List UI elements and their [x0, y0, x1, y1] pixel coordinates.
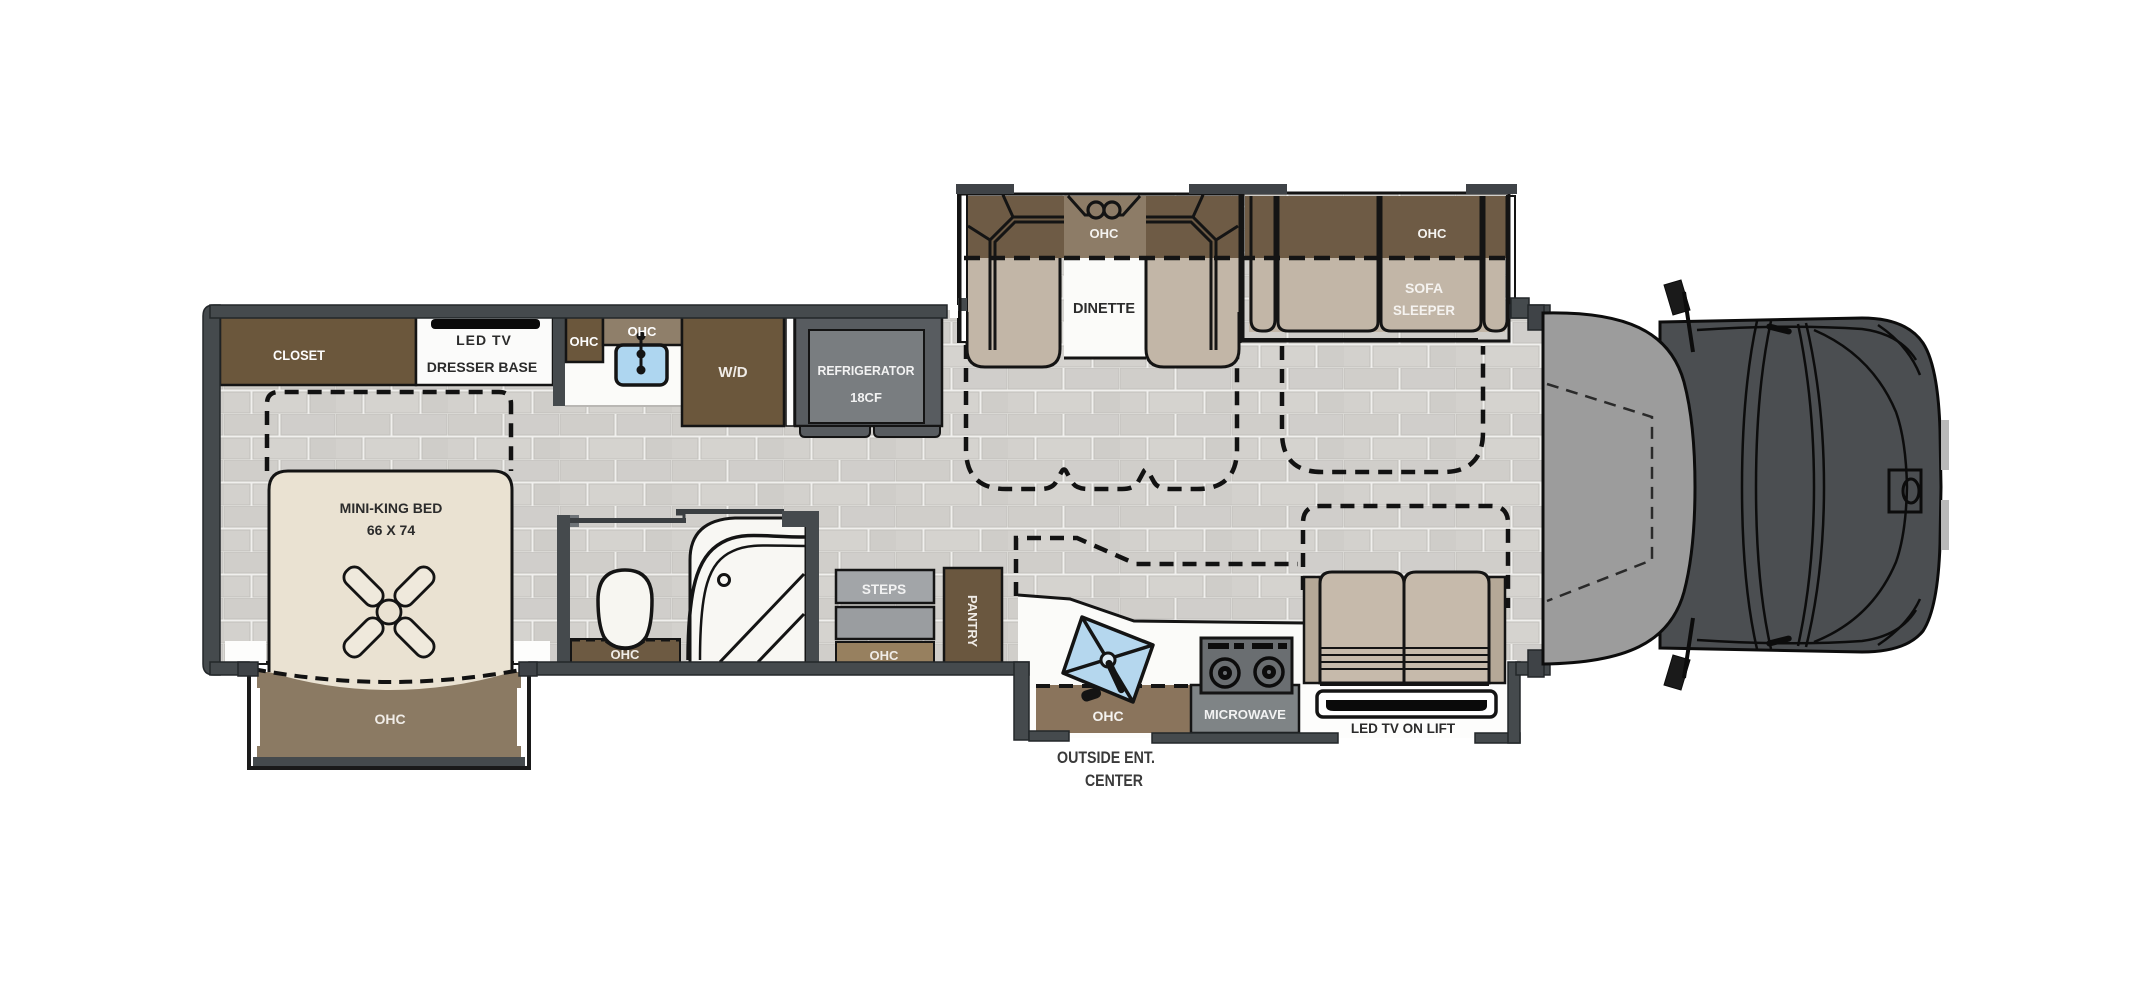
svg-text:REFRIGERATOR: REFRIGERATOR [818, 363, 916, 378]
svg-text:STEPS: STEPS [862, 582, 906, 597]
svg-text:SLEEPER: SLEEPER [1393, 302, 1455, 318]
svg-text:W/D: W/D [718, 364, 747, 381]
svg-text:PANTRY: PANTRY [965, 595, 980, 647]
svg-text:OHC: OHC [1092, 708, 1123, 724]
svg-text:LED TV ON LIFT: LED TV ON LIFT [1351, 721, 1456, 736]
svg-text:MICROWAVE: MICROWAVE [1204, 707, 1286, 722]
svg-text:DRESSER BASE: DRESSER BASE [427, 359, 537, 375]
svg-text:66 X 74: 66 X 74 [367, 522, 415, 538]
svg-text:OHC: OHC [1418, 226, 1448, 241]
svg-text:LED TV: LED TV [456, 332, 512, 348]
svg-text:SOFA: SOFA [1405, 280, 1443, 296]
svg-text:DINETTE: DINETTE [1073, 300, 1135, 317]
svg-text:CLOSET: CLOSET [273, 347, 325, 363]
svg-text:OHC: OHC [1090, 226, 1120, 241]
svg-text:MINI-KING BED: MINI-KING BED [340, 500, 443, 516]
svg-text:OUTSIDE ENT.: OUTSIDE ENT. [1057, 748, 1155, 767]
svg-text:OHC: OHC [374, 711, 405, 727]
svg-text:OHC: OHC [870, 648, 900, 663]
svg-text:OHC: OHC [611, 647, 641, 662]
svg-text:18CF: 18CF [850, 390, 882, 405]
svg-text:OHC: OHC [570, 334, 600, 349]
svg-text:CENTER: CENTER [1085, 771, 1143, 790]
svg-text:OHC: OHC [628, 324, 658, 339]
